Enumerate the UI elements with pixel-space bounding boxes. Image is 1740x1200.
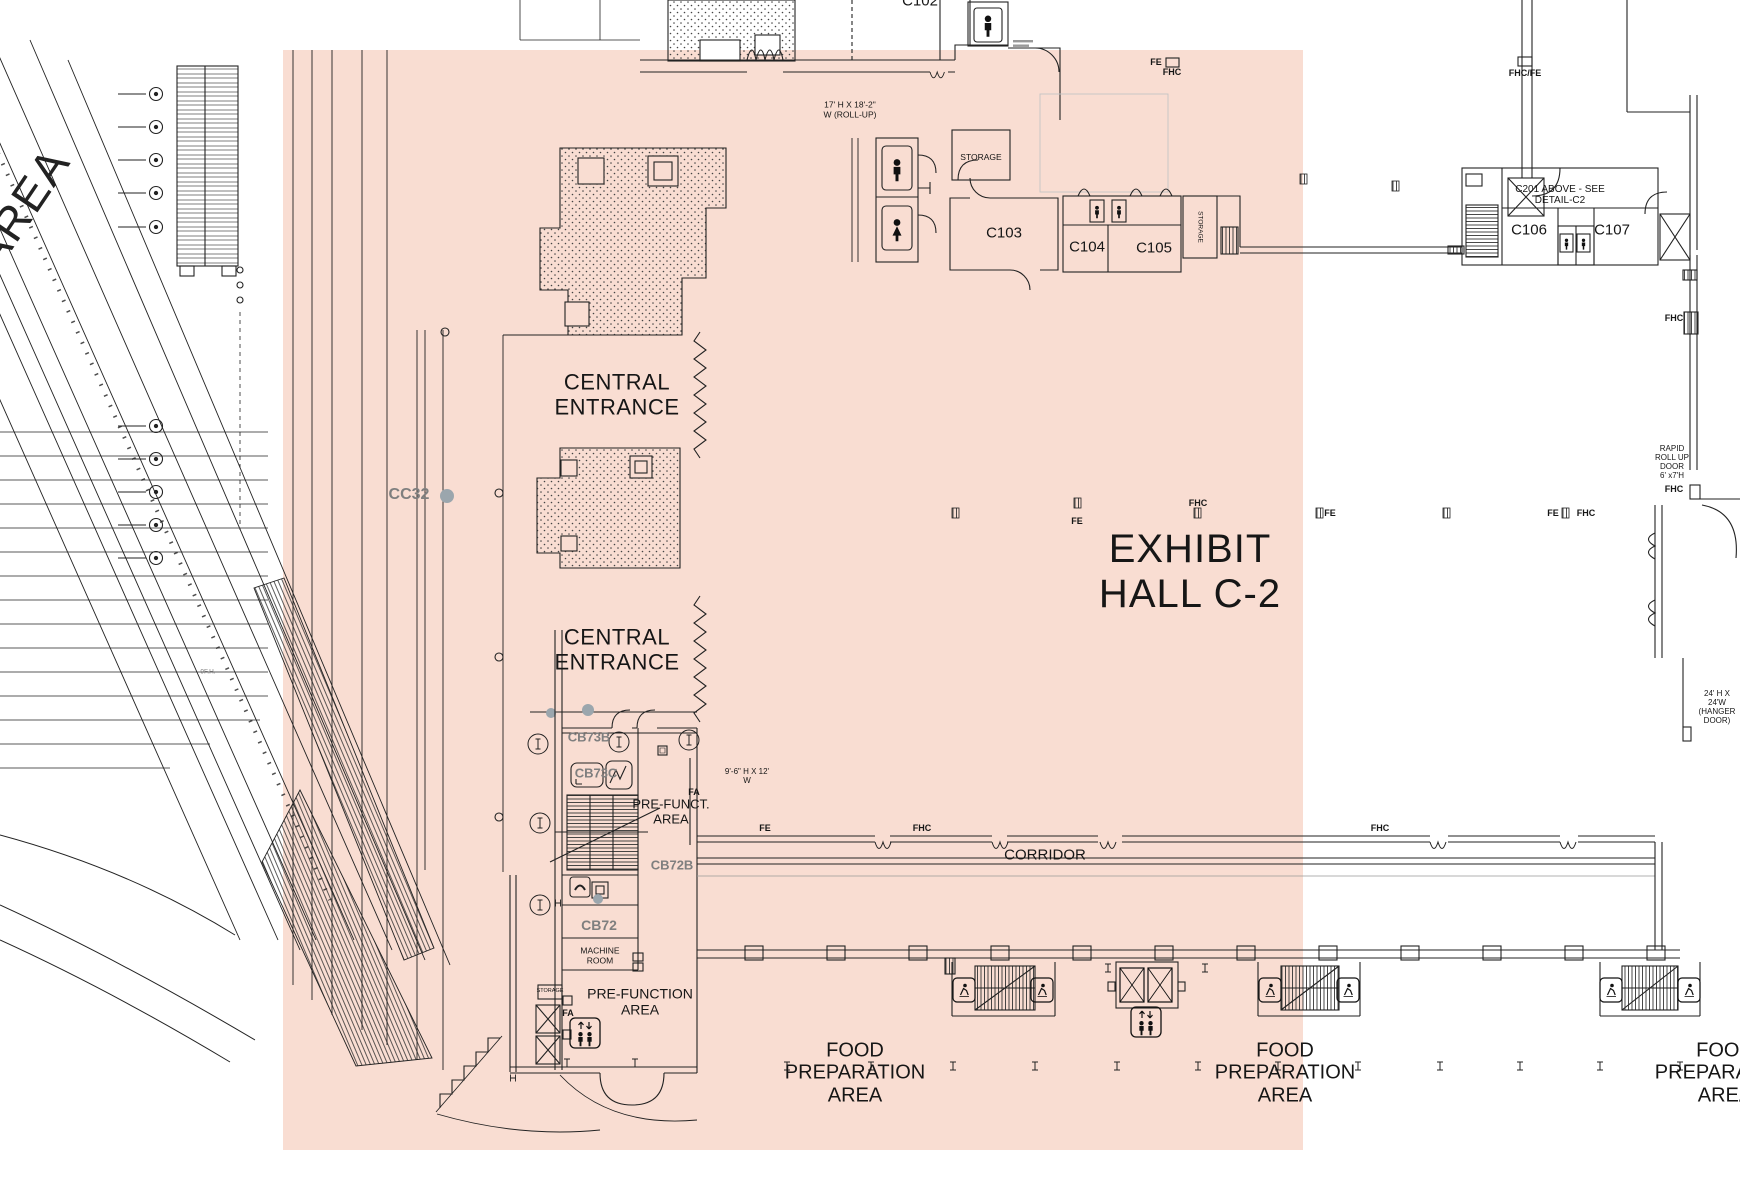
room-label-c106: C106 <box>1511 223 1547 240</box>
fhc-label-hall1: FHC <box>1189 498 1208 508</box>
fhc-label-corridor2: FHC <box>1371 823 1390 833</box>
storage-label-top: STORAGE <box>960 153 1001 163</box>
food-prep-label-1: FOOD PREPARATION AREA <box>785 1039 925 1106</box>
fhc-label-hall2: FHC <box>1577 508 1596 518</box>
exhibit-hall-title: EXHIBIT HALL C-2 <box>1099 527 1281 617</box>
central-entrance-label-2: CENTRAL ENTRANCE <box>554 625 679 674</box>
pre-function-area-label: PRE-FUNCTION AREA <box>587 986 693 1017</box>
fe-label-corridor: FE <box>759 823 771 833</box>
room-label-c103: C103 <box>986 226 1022 243</box>
storage-label-side: STORAGE <box>1196 211 1203 243</box>
machine-room-label: MACHINE ROOM <box>580 946 619 965</box>
room-label-c105: C105 <box>1136 241 1172 258</box>
corridor-label: CORRIDOR <box>1004 848 1086 865</box>
fa-label-2: FA <box>562 1008 574 1018</box>
fhc-label-east2: FHC <box>1665 484 1684 494</box>
fe-label-top: FE <box>1150 57 1162 67</box>
fhc-label-top: FHC <box>1163 67 1182 77</box>
rollup-door-note: 17' H X 18'-2" W (ROLL-UP) <box>824 100 877 119</box>
central-entrance-label-1: CENTRAL ENTRANCE <box>554 370 679 419</box>
cb72b-label: CB72B <box>651 859 694 874</box>
fhc-fe-label-topright: FHC/FE <box>1509 68 1542 78</box>
cb73b-label: CB73B <box>568 731 611 746</box>
cb73c-label: CB73C <box>575 767 618 782</box>
fe-label-hall2: FE <box>1324 508 1336 518</box>
rapid-rollup-door-note: RAPID ROLL UP DOOR 6' x7'H <box>1655 445 1689 481</box>
cb72-label: CB72 <box>581 918 617 934</box>
room-label-c102: C102 <box>902 0 938 10</box>
storage-label-small: STORAGE <box>537 988 564 994</box>
pre-funct-area-label: PRE-FUNCT. AREA <box>632 797 709 826</box>
fhc-label-east1: FHC <box>1665 313 1684 323</box>
door-9-6-note: 9'-6" H X 12' W <box>725 768 769 786</box>
room-label-c104: C104 <box>1069 240 1105 257</box>
floorplan-linework <box>0 0 1740 1200</box>
hanger-door-note: 24' H X 24'W (HANGER DOOR) <box>1699 690 1736 726</box>
fh-note: 9F.H. <box>200 668 215 675</box>
cc32-label: CC32 <box>389 486 430 504</box>
floor-plan-page: AREA C102 17' H X 18'-2" W (ROLL-UP) FE … <box>0 0 1740 1200</box>
room-label-c107: C107 <box>1594 223 1630 240</box>
food-prep-label-2: FOOD PREPARATION AREA <box>1215 1039 1355 1106</box>
fe-label-hall3: FE <box>1547 508 1559 518</box>
food-prep-label-3: FOOD PREPARATION AREA <box>1655 1039 1740 1106</box>
fe-label-hall1: FE <box>1071 516 1083 526</box>
c201-detail-note: C201 ABOVE - SEE DETAIL-C2 <box>1515 184 1605 206</box>
fhc-label-corridor1: FHC <box>913 823 932 833</box>
